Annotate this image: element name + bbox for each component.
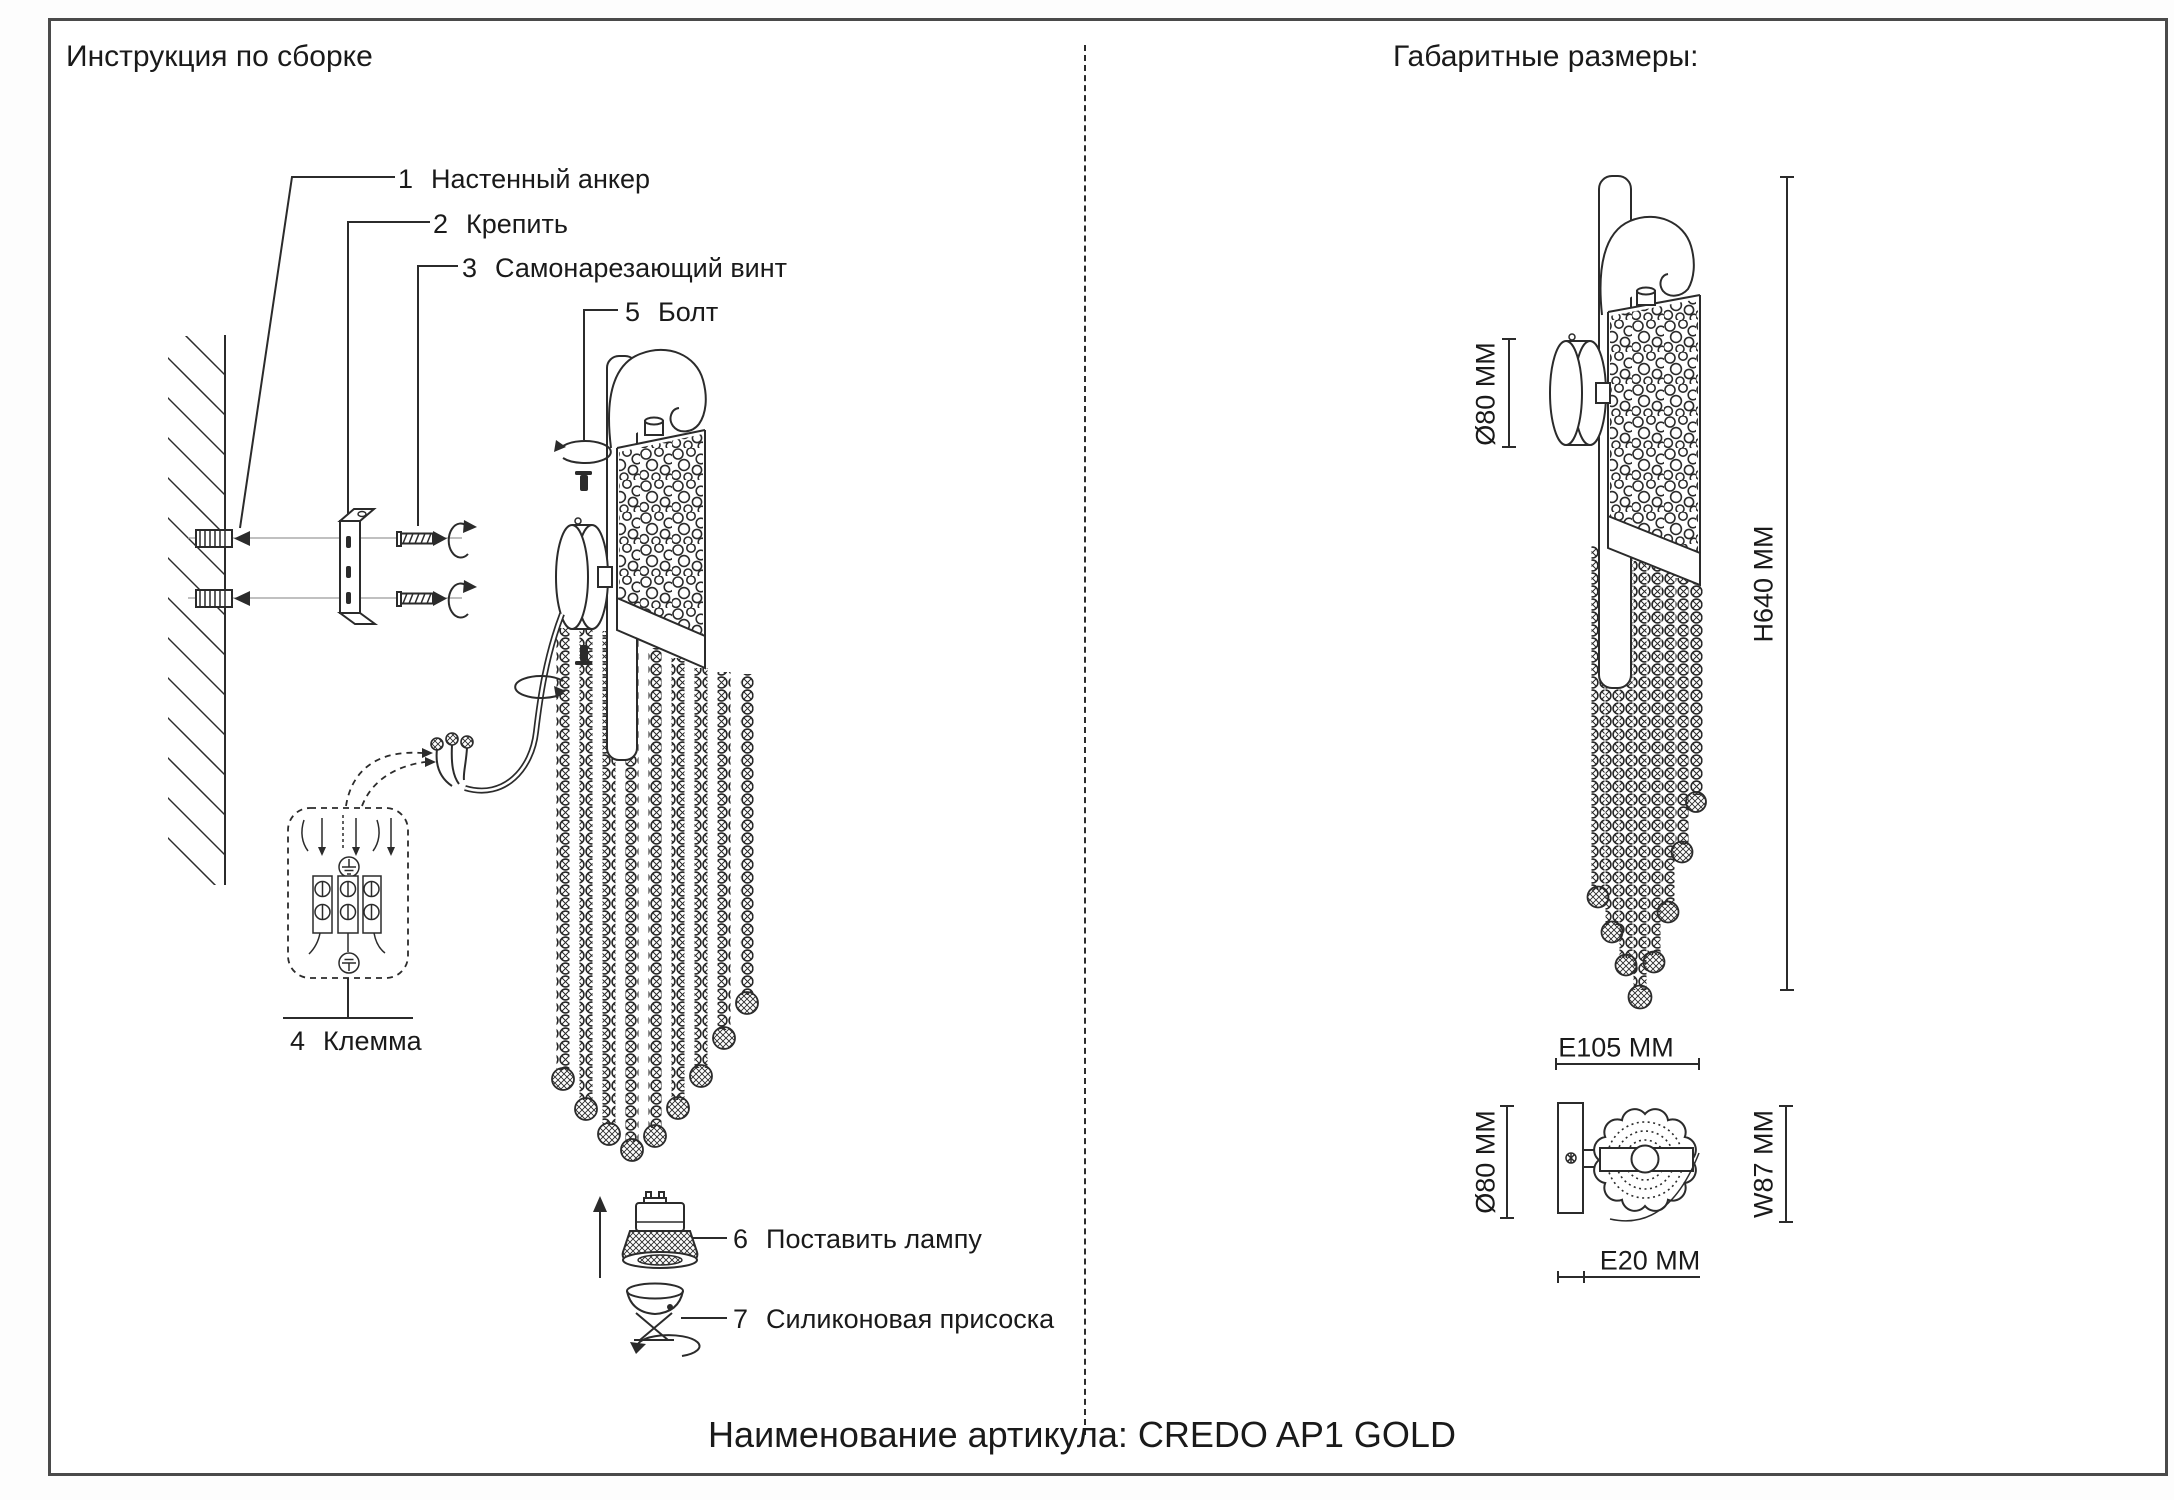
part-text: Настенный анкер — [431, 164, 650, 195]
part-label-suction: 7 Силиконовая присоска — [733, 1304, 1054, 1335]
wire-connector — [431, 733, 473, 786]
article-name-caption: Наименование артикула: CREDO AP1 GOLD — [708, 1414, 1456, 1456]
shade-knob-right — [1637, 288, 1655, 306]
part-number: 3 — [462, 253, 477, 284]
line-art — [0, 0, 2174, 1500]
dimension-line-height — [1780, 177, 1794, 990]
part-text: Крепить — [466, 209, 568, 240]
dimension-line-diameter-bottom — [1500, 1106, 1514, 1218]
dimension-line-diameter-side — [1502, 339, 1516, 447]
canopy-disc — [556, 518, 612, 629]
part-label-screw: 3 Самонарезающий винт — [462, 253, 787, 284]
dim-label-width: W87 MM — [1749, 1110, 1780, 1218]
dimensions-title: Габаритные размеры: — [1393, 40, 1698, 74]
part-text: Силиконовая присоска — [766, 1304, 1054, 1335]
crystal-strands — [552, 628, 758, 1161]
part-number: 4 — [290, 1026, 305, 1057]
part-number: 2 — [433, 209, 448, 240]
part-label-bolt: 5 Болт — [625, 297, 718, 328]
terminal-block-diagram — [288, 748, 436, 978]
dim-label-diameter-side: Ø80 MM — [1471, 342, 1502, 446]
instruction-sheet: Инструкция по сборке Габаритные размеры:… — [0, 0, 2174, 1500]
part-text: Самонарезающий винт — [495, 253, 787, 284]
dim-label-height: H640 MM — [1749, 525, 1780, 642]
part-label-lamp: 6 Поставить лампу — [733, 1224, 982, 1255]
part-label-anchor: 1 Настенный анкер — [398, 164, 650, 195]
lamp-bulb-icon — [593, 1192, 697, 1278]
assembly-title: Инструкция по сборке — [66, 40, 373, 74]
wall-anchor-icon — [196, 530, 250, 607]
power-cable — [465, 614, 562, 791]
dim-label-extension-bottom: E20 MM — [1600, 1246, 1701, 1277]
part-text: Клемма — [323, 1026, 422, 1057]
part-label-bracket: 2 Крепить — [433, 209, 568, 240]
wall-lamp-assembly-view — [431, 350, 758, 1161]
mounting-bracket-icon — [340, 509, 375, 624]
dimension-line-width — [1779, 1106, 1793, 1222]
screw-icon — [397, 520, 477, 618]
part-number: 1 — [398, 164, 413, 195]
part-label-terminal: 4 Клемма — [290, 1026, 422, 1057]
dim-label-diameter-bottom: Ø80 MM — [1471, 1110, 1502, 1214]
crystal-ring-top-view — [1594, 1109, 1699, 1221]
part-number: 7 — [733, 1304, 748, 1335]
part-text: Поставить лампу — [766, 1224, 982, 1255]
dim-label-extension-top: E105 MM — [1558, 1033, 1674, 1064]
part-number: 5 — [625, 297, 640, 328]
shade-knob — [645, 418, 663, 436]
suction-cup-icon — [627, 1284, 700, 1357]
part-number: 6 — [733, 1224, 748, 1255]
part-text: Болт — [658, 297, 718, 328]
